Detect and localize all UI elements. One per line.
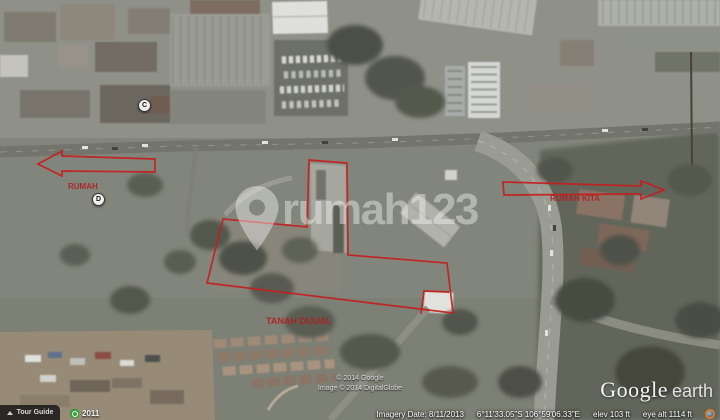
- attribution-line1: © 2014 Google: [285, 374, 435, 384]
- google-earth-logo: Google earth: [600, 377, 713, 403]
- google-earth-window: RUMAH RUMAH KITA TANAH DIJUAL rumah123 C…: [0, 0, 720, 420]
- bottom-parcel-label: TANAH DIJUAL: [266, 316, 332, 326]
- chevron-up-icon: [7, 411, 13, 415]
- status-bar: Imagery Date: 8/11/2013 6°11'33.05"S 106…: [376, 409, 715, 419]
- placemark-d[interactable]: D: [92, 193, 105, 206]
- history-year-badge[interactable]: 2011: [70, 409, 99, 418]
- clock-icon: [70, 409, 79, 418]
- satellite-imagery: RUMAH RUMAH KITA TANAH DIJUAL rumah123: [0, 0, 720, 420]
- imagery-date: Imagery Date: 8/11/2013: [376, 410, 463, 419]
- imagery-attribution: © 2014 Google Image © 2014 DigitalGlobe: [285, 374, 435, 394]
- attribution-line2: Image © 2014 DigitalGlobe: [285, 384, 435, 394]
- watermark-text: rumah123: [282, 185, 478, 234]
- coordinates: 6°11'33.05"S 106°59'06.33"E: [477, 410, 580, 419]
- right-parcel-label: RUMAH KITA: [550, 194, 600, 203]
- earth-logo-text: earth: [672, 381, 713, 402]
- elevation: elev 103 ft: [593, 410, 630, 419]
- streaming-status-icon: [705, 409, 715, 419]
- google-logo-text: Google: [600, 377, 668, 403]
- tour-guide-button[interactable]: Tour Guide: [0, 405, 60, 420]
- placemark-c[interactable]: C: [138, 99, 151, 112]
- eye-altitude: eye alt 1114 ft: [643, 410, 692, 419]
- left-parcel-label: RUMAH: [68, 182, 98, 191]
- history-year-label: 2011: [82, 409, 99, 418]
- tour-guide-label: Tour Guide: [17, 409, 54, 416]
